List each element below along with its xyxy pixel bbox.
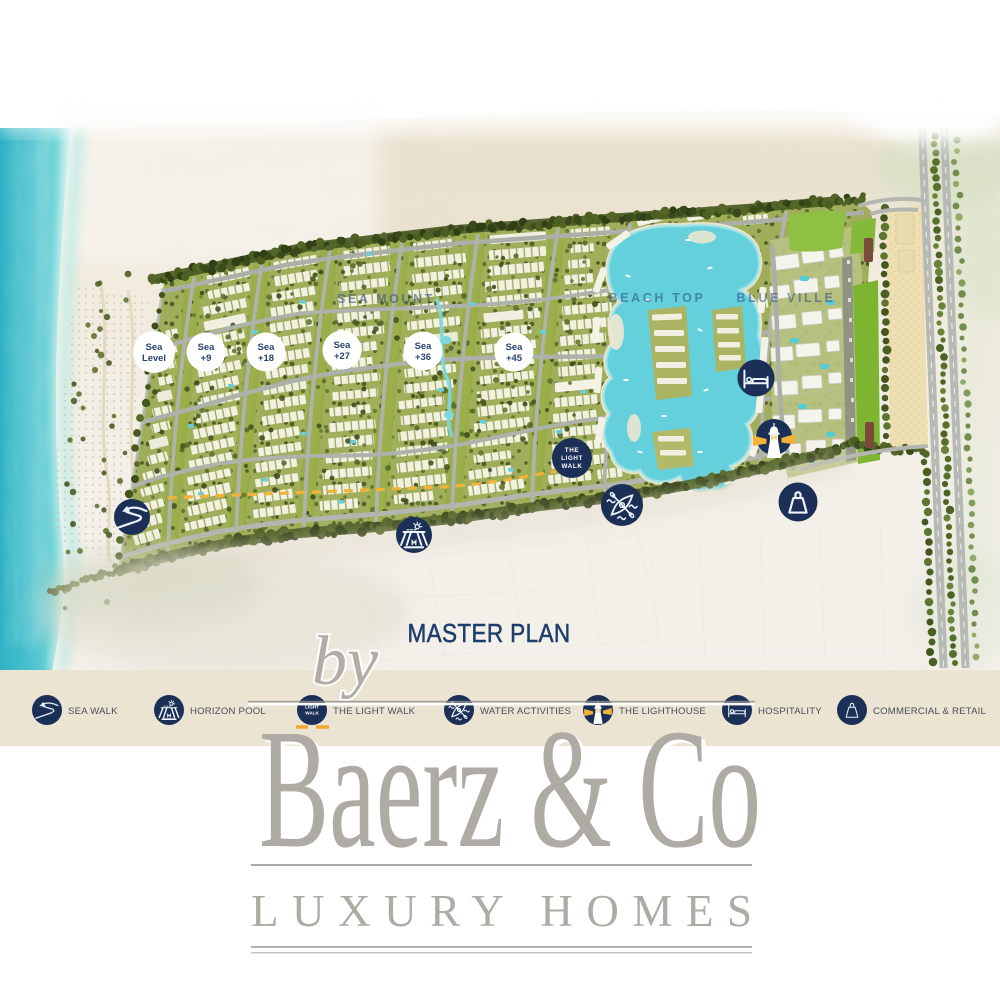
svg-text:Sea: Sea bbox=[334, 339, 351, 350]
svg-text:Sea: Sea bbox=[415, 340, 432, 351]
svg-text:LIGHT: LIGHT bbox=[561, 455, 583, 462]
svg-text:Sea: Sea bbox=[146, 341, 163, 352]
svg-text:BEACH TOP: BEACH TOP bbox=[609, 291, 706, 305]
svg-text:by: by bbox=[312, 623, 379, 700]
svg-text:WALK: WALK bbox=[562, 463, 583, 470]
svg-text:THE: THE bbox=[565, 447, 579, 454]
svg-text:Sea: Sea bbox=[506, 341, 523, 352]
svg-text:Sea: Sea bbox=[258, 341, 275, 352]
svg-text:SEA MOUNT: SEA MOUNT bbox=[337, 292, 435, 306]
svg-text:SEA WALK: SEA WALK bbox=[68, 706, 118, 717]
svg-text:COMMERCIAL & RETAIL: COMMERCIAL & RETAIL bbox=[873, 706, 987, 717]
svg-text:HOSPITALITY: HOSPITALITY bbox=[758, 706, 822, 717]
svg-text:+27: +27 bbox=[334, 350, 350, 361]
svg-text:+36: +36 bbox=[415, 351, 431, 362]
svg-text:Level: Level bbox=[142, 352, 166, 363]
svg-text:Sea: Sea bbox=[198, 341, 215, 352]
svg-text:Baerz & Co: Baerz & Co bbox=[259, 694, 761, 883]
svg-text:+45: +45 bbox=[506, 352, 522, 363]
svg-text:BLUE VILLE: BLUE VILLE bbox=[737, 291, 836, 305]
svg-text:HORIZON POOL: HORIZON POOL bbox=[190, 706, 266, 717]
svg-text:+18: +18 bbox=[258, 352, 274, 363]
svg-text:MASTER PLAN: MASTER PLAN bbox=[408, 618, 571, 648]
svg-text:+9: +9 bbox=[201, 352, 212, 363]
